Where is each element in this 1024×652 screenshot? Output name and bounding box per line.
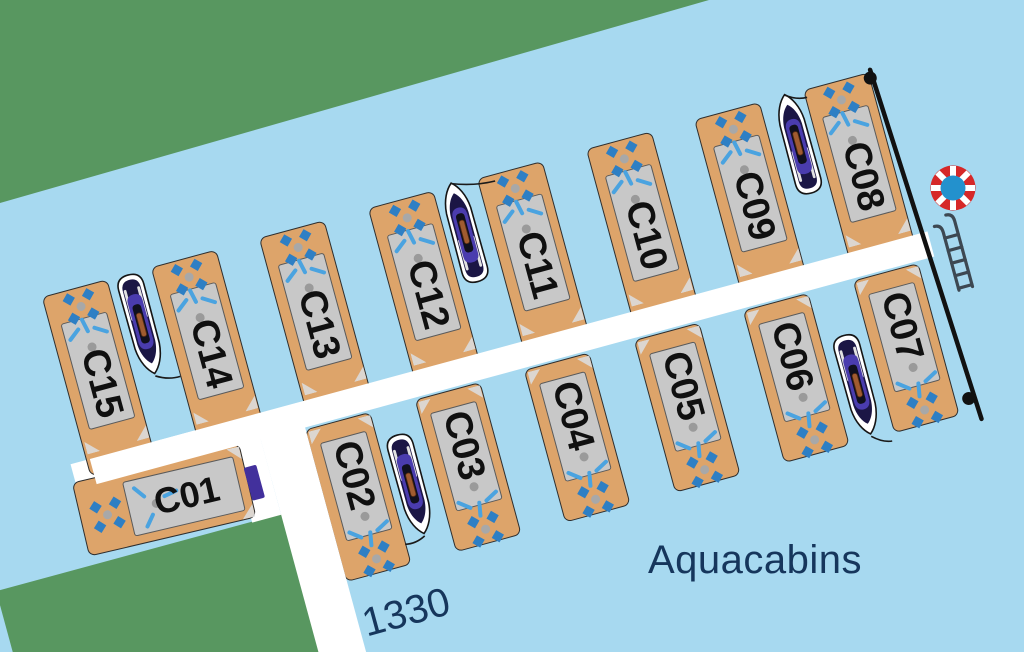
corner-wedge — [410, 350, 426, 366]
mooring-diamond — [821, 440, 833, 452]
mooring-diamond — [577, 486, 589, 498]
mooring-diamond — [692, 475, 704, 487]
cabin-label: C12 — [398, 255, 458, 334]
mooring-diamond — [492, 530, 504, 542]
mooring-diamond — [596, 481, 608, 493]
mooring-diamond — [89, 501, 101, 513]
cabin-label: C06 — [762, 317, 822, 396]
mooring-pattern-dot — [619, 153, 630, 164]
cabin-label: C14 — [180, 315, 240, 394]
mooring-diamond — [911, 416, 923, 428]
mooring-diamond — [601, 500, 613, 512]
cabin-label: C03 — [433, 406, 493, 485]
ladder-icon — [928, 207, 981, 296]
mooring-diamond — [382, 559, 394, 571]
mooring-pattern-dot — [699, 464, 710, 475]
mooring-diamond — [388, 204, 400, 216]
mooring-diamond — [280, 234, 292, 246]
mooring-diamond — [930, 410, 942, 422]
mooring-diamond — [815, 421, 827, 433]
mooring-pattern-dot — [727, 123, 738, 134]
corner-wedge — [460, 336, 476, 352]
mooring-diamond — [823, 86, 835, 98]
mooring-pattern-dot — [809, 434, 820, 445]
mooring-diamond — [606, 145, 618, 157]
mooring-diamond — [486, 510, 498, 522]
corner-wedge — [686, 326, 702, 342]
mooring-diamond — [497, 175, 509, 187]
mooring-pattern-dot — [510, 182, 521, 193]
corner-wedge — [467, 385, 483, 401]
corner-wedge — [302, 379, 318, 395]
mooring-diamond — [363, 565, 375, 577]
corner-wedge — [84, 438, 100, 454]
corner-wedge — [677, 277, 693, 293]
pontoon-frame: C01C02C03C04C05C06C07C08C09C10C11C12C13C… — [0, 12, 1024, 652]
area-title: Aquacabins — [648, 538, 862, 583]
corner-wedge — [358, 415, 374, 431]
mooring-pattern-dot — [480, 523, 491, 534]
corner-wedge — [351, 366, 367, 382]
mooring-diamond — [171, 263, 183, 275]
mooring-diamond — [843, 81, 855, 93]
cabin-label: C08 — [833, 137, 893, 216]
cabin-label: C05 — [652, 347, 712, 426]
mooring-diamond — [516, 170, 528, 182]
corner-wedge — [577, 355, 593, 371]
corner-wedge — [193, 409, 209, 425]
mooring-pattern-dot — [75, 301, 86, 312]
mooring-diamond — [358, 545, 370, 557]
mooring-diamond — [801, 445, 813, 457]
mooring-diamond — [796, 426, 808, 438]
mooring-diamond — [108, 496, 120, 508]
cabin-C05: C05 — [634, 322, 741, 492]
cabin-label: C07 — [872, 287, 932, 366]
corner-wedge — [628, 291, 644, 307]
corner-wedge — [568, 307, 584, 323]
mooring-diamond — [706, 451, 718, 463]
mooring-diamond — [582, 505, 594, 517]
mooring-pattern-dot — [102, 509, 113, 520]
corner-wedge — [845, 232, 861, 248]
mooring-pattern-dot — [919, 404, 930, 415]
mooring-pattern-dot — [184, 271, 195, 282]
lifebuoy-icon — [929, 164, 977, 212]
cabin-label: C13 — [289, 285, 349, 364]
cabin-label: C09 — [724, 167, 784, 246]
mooring-diamond — [81, 288, 93, 300]
corner-wedge — [895, 218, 911, 234]
mooring-diamond — [925, 391, 937, 403]
corner-wedge — [786, 248, 802, 264]
mooring-diamond — [408, 199, 420, 211]
pier-number: 1330 — [333, 573, 480, 652]
corner-wedge — [906, 266, 922, 282]
mooring-diamond — [113, 516, 125, 528]
corner-wedge — [519, 320, 535, 336]
corner-wedge — [242, 396, 258, 412]
marina-map: C01C02C03C04C05C06C07C08C09C10C11C12C13C… — [0, 0, 1024, 652]
mooring-pattern-dot — [590, 493, 601, 504]
cabin-label: C02 — [323, 436, 383, 515]
mooring-pattern-dot — [370, 553, 381, 564]
mooring-diamond — [715, 116, 727, 128]
mooring-diamond — [377, 540, 389, 552]
cabin-C06: C06 — [743, 293, 850, 463]
mooring-diamond — [299, 229, 311, 241]
mooring-diamond — [472, 535, 484, 547]
cabin-label: C04 — [543, 377, 603, 456]
mooring-diamond — [62, 293, 74, 305]
deck-dash — [368, 531, 373, 548]
cabin-C04: C04 — [524, 352, 631, 522]
cabin-label: C11 — [507, 227, 566, 304]
corner-wedge — [796, 296, 812, 312]
mooring-diamond — [190, 258, 202, 270]
cabin-label: C10 — [615, 196, 675, 275]
mooring-diamond — [467, 516, 479, 528]
mooring-diamond — [734, 110, 746, 122]
mooring-diamond — [625, 140, 637, 152]
corner-wedge — [737, 261, 753, 277]
mooring-pattern-dot — [401, 212, 412, 223]
mooring-diamond — [686, 456, 698, 468]
mooring-diamond — [906, 396, 918, 408]
mooring-pattern-dot — [836, 94, 847, 105]
mooring-diamond — [93, 520, 105, 532]
mooring-pattern-dot — [292, 242, 303, 253]
mooring-diamond — [711, 470, 723, 482]
corner-wedge — [133, 425, 149, 441]
mooring-post-dot — [961, 390, 977, 406]
cabin-label: C15 — [72, 344, 132, 423]
